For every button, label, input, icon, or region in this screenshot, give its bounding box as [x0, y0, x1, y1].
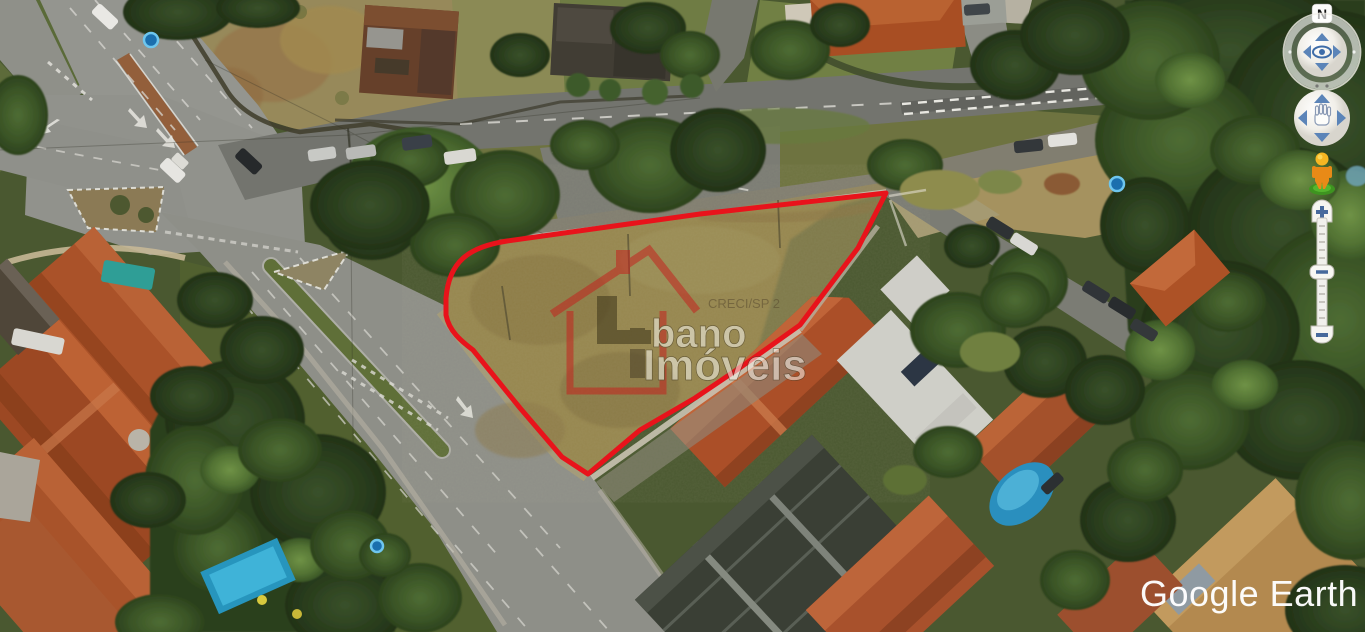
svg-text:Google Earth: Google Earth: [1140, 573, 1358, 614]
svg-text:CRECI/SP 2: CRECI/SP 2: [708, 296, 780, 311]
svg-text:Imóveis: Imóveis: [643, 341, 807, 390]
